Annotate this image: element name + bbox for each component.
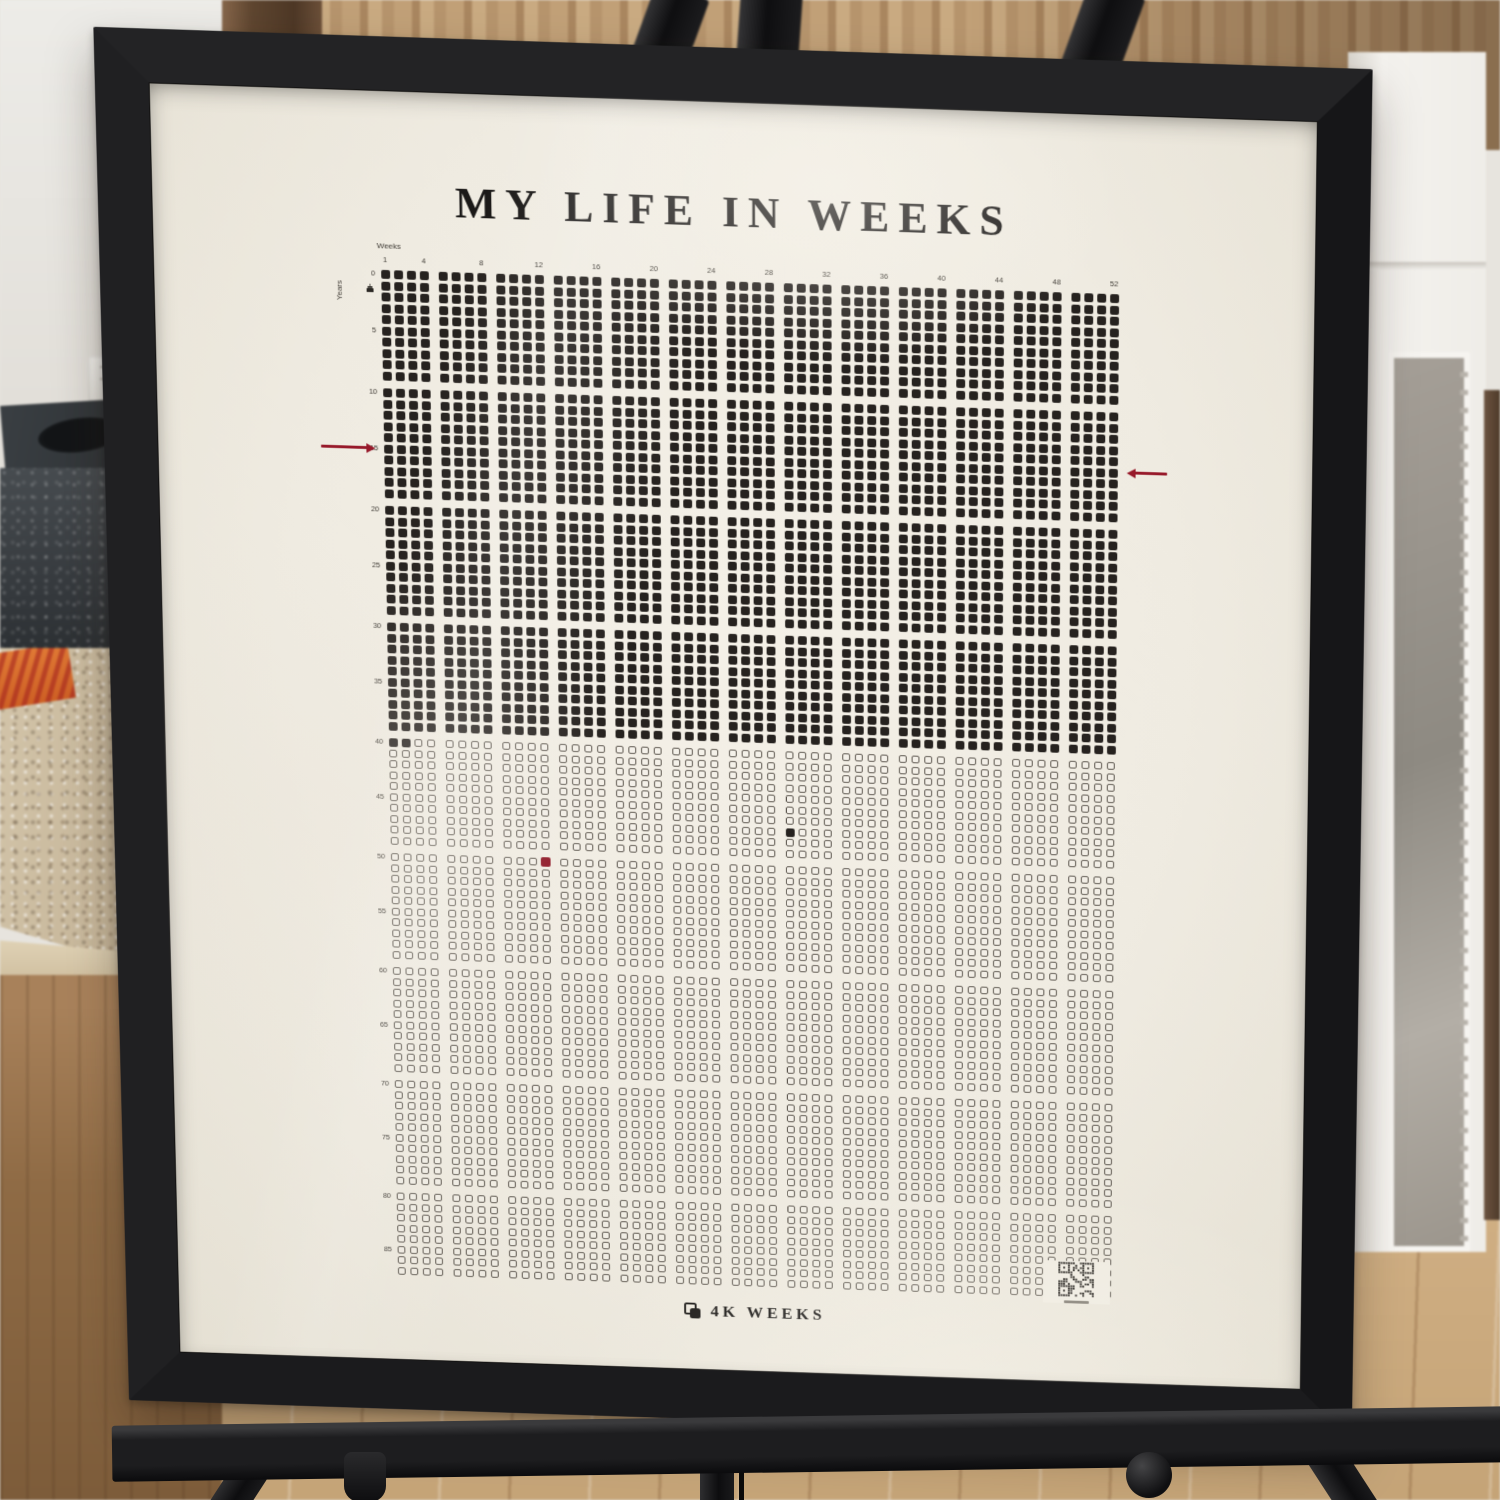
week-cell	[924, 957, 932, 965]
week-cell	[1067, 1135, 1075, 1143]
week-cell	[1107, 734, 1116, 743]
week-cell	[406, 978, 414, 986]
week-cell	[855, 460, 864, 469]
week-cell	[1027, 291, 1036, 300]
week-cell	[855, 1068, 863, 1076]
week-cell	[509, 1239, 517, 1247]
week-cell	[937, 756, 945, 764]
week-cell	[823, 648, 832, 657]
week-cell	[567, 299, 576, 308]
week-cell	[1068, 930, 1076, 938]
week-cell	[769, 1237, 777, 1245]
week-cell	[868, 1149, 876, 1157]
week-cell	[689, 1255, 697, 1263]
week-cell	[582, 495, 591, 504]
week-cell	[980, 1030, 988, 1038]
week-cell	[868, 869, 876, 877]
week-cell	[810, 414, 819, 423]
week-cell	[601, 1119, 609, 1127]
week-cell	[1014, 325, 1023, 334]
week-cell	[674, 1009, 682, 1017]
week-cell	[925, 507, 934, 516]
week-cell	[899, 967, 907, 975]
week-cell	[563, 1059, 571, 1067]
week-cell	[490, 1196, 498, 1204]
week-cell	[994, 526, 1003, 535]
week-cell	[655, 862, 663, 870]
week-cell	[1070, 478, 1079, 487]
week-cell	[395, 1064, 403, 1072]
week-cell	[656, 1030, 664, 1038]
week-cell	[955, 1195, 963, 1203]
week-cell	[447, 855, 455, 863]
week-cell	[531, 993, 539, 1001]
week-cell	[432, 1081, 440, 1089]
week-cell	[392, 886, 400, 894]
week-cell	[487, 992, 495, 1000]
week-cell	[710, 633, 719, 642]
week-cell	[1081, 909, 1089, 917]
week-cell	[600, 995, 608, 1003]
week-cell	[697, 633, 706, 642]
week-cell	[1050, 760, 1058, 768]
week-cell	[1092, 1076, 1100, 1084]
week-cell	[611, 289, 620, 298]
week-cell	[454, 1269, 462, 1277]
week-cell	[581, 417, 590, 426]
week-cell	[1079, 1247, 1087, 1255]
week-cell	[1071, 456, 1080, 465]
week-cell	[539, 600, 548, 609]
week-cell	[753, 490, 762, 499]
week-cell	[936, 1274, 944, 1282]
week-cell	[925, 485, 934, 494]
week-cell	[843, 1260, 851, 1268]
week-cell	[812, 1206, 820, 1214]
week-cell	[517, 879, 525, 887]
week-cell	[1106, 838, 1114, 846]
week-cell	[1052, 511, 1061, 520]
week-cell	[700, 1074, 708, 1082]
week-cell	[577, 1262, 585, 1270]
week-cell	[672, 720, 681, 729]
week-cell	[1083, 573, 1092, 582]
week-cell	[395, 327, 404, 336]
week-cell	[1105, 1055, 1113, 1063]
week-cell	[786, 850, 794, 858]
week-cell	[1108, 619, 1117, 628]
week-cell	[682, 325, 691, 334]
week-cell	[632, 1184, 640, 1192]
week-cell	[573, 881, 581, 889]
week-cell	[687, 1101, 695, 1109]
week-cell	[823, 436, 832, 445]
week-cell	[631, 1018, 639, 1026]
week-cell	[472, 839, 480, 847]
week-cell	[937, 440, 946, 449]
week-cell	[1051, 539, 1060, 548]
week-cell	[581, 406, 590, 415]
week-cell	[911, 1161, 919, 1169]
week-cell	[684, 582, 693, 591]
week-cell	[389, 760, 397, 768]
week-cell	[395, 1102, 403, 1110]
week-cell	[593, 288, 602, 297]
week-cell	[810, 363, 819, 372]
week-cell	[686, 863, 694, 871]
week-cell	[955, 1109, 963, 1117]
week-cell	[924, 925, 932, 933]
week-cell	[709, 583, 718, 592]
week-cell	[587, 1038, 595, 1046]
week-cell	[567, 344, 576, 353]
week-cell	[824, 965, 832, 973]
week-cell	[480, 459, 489, 468]
week-cell	[1096, 529, 1105, 538]
week-cell	[568, 439, 577, 448]
week-cell	[911, 1210, 919, 1218]
week-cell	[670, 487, 679, 496]
week-cell	[407, 293, 416, 302]
week-cell	[653, 686, 662, 695]
week-cell	[1012, 895, 1020, 903]
week-cell	[568, 406, 577, 415]
week-cell	[484, 785, 492, 793]
week-cell	[670, 409, 679, 418]
week-cell	[455, 519, 464, 528]
week-cell	[1025, 847, 1033, 855]
week-cell	[448, 866, 456, 874]
week-cell	[642, 883, 650, 891]
week-cell	[583, 590, 592, 599]
week-cell	[740, 467, 749, 476]
week-cell	[395, 315, 404, 324]
week-cell	[686, 874, 694, 882]
week-cell	[880, 343, 889, 352]
week-cell	[596, 629, 605, 638]
week-cell	[456, 586, 465, 595]
week-cell	[452, 1146, 460, 1154]
week-cell	[899, 881, 907, 889]
week-cell	[512, 510, 521, 519]
week-cell	[420, 1081, 428, 1089]
week-cell	[1051, 689, 1060, 698]
week-cell	[405, 940, 413, 948]
week-cell	[842, 868, 850, 876]
week-cell	[854, 331, 863, 340]
week-cell	[956, 757, 964, 765]
week-cell	[800, 1270, 808, 1278]
week-cell	[843, 1127, 851, 1135]
week-cell	[484, 774, 492, 782]
week-cell	[478, 307, 487, 316]
week-cell	[497, 308, 506, 317]
week-cell	[912, 717, 921, 726]
week-cell	[868, 1096, 876, 1104]
week-cell	[880, 842, 888, 850]
week-cell	[810, 542, 819, 551]
week-cell	[557, 589, 566, 598]
week-cell	[1069, 815, 1077, 823]
week-cell	[687, 998, 695, 1006]
week-cell	[568, 428, 577, 437]
week-cell	[956, 323, 965, 332]
week-cell	[524, 404, 533, 413]
week-cell	[658, 1275, 666, 1283]
week-cell	[842, 682, 851, 691]
week-cell	[588, 1108, 596, 1116]
week-cell	[743, 962, 751, 970]
week-cell	[800, 1126, 808, 1134]
week-cell	[423, 507, 432, 516]
week-cell	[464, 1136, 472, 1144]
week-cell	[535, 286, 544, 295]
week-cell	[912, 462, 921, 471]
week-cell	[613, 418, 622, 427]
week-cell	[1048, 1123, 1056, 1131]
week-cell	[924, 651, 933, 660]
week-cell	[1080, 952, 1088, 960]
week-cell	[1040, 326, 1049, 335]
week-cell	[766, 412, 775, 421]
week-cell	[1071, 338, 1080, 347]
week-cell	[798, 713, 807, 722]
week-cell	[912, 651, 921, 660]
week-cell	[785, 480, 794, 489]
week-cell	[880, 286, 889, 295]
week-cell	[539, 650, 548, 659]
week-cell	[616, 746, 624, 754]
week-cell	[993, 1019, 1001, 1027]
week-cell	[442, 508, 451, 517]
week-cell	[823, 543, 832, 552]
week-cell	[433, 1135, 441, 1143]
week-cell	[387, 633, 396, 642]
week-cell	[937, 1082, 945, 1090]
week-cell	[413, 656, 422, 665]
week-cell	[912, 777, 920, 785]
week-cell	[899, 935, 907, 943]
week-cell	[700, 1112, 708, 1120]
week-cell	[654, 758, 662, 766]
week-cell	[880, 683, 889, 692]
week-cell	[880, 567, 889, 576]
week-cell	[1024, 907, 1032, 915]
week-cell	[955, 1163, 963, 1171]
week-cell	[1094, 723, 1103, 732]
week-cell	[1049, 940, 1057, 948]
week-cell	[955, 1082, 963, 1090]
week-cell	[497, 330, 506, 339]
year-tick-label: 10	[351, 386, 377, 396]
week-cell	[1048, 1145, 1056, 1153]
week-cell	[787, 1125, 795, 1133]
week-cell	[937, 613, 946, 622]
week-cell	[491, 1259, 499, 1267]
week-cell	[937, 1109, 945, 1117]
week-cell	[912, 995, 920, 1003]
week-cell	[517, 901, 525, 909]
week-cell	[653, 697, 662, 706]
week-cell	[611, 277, 620, 286]
week-cell	[744, 1268, 752, 1276]
week-cell	[712, 1042, 720, 1050]
week-cell	[392, 929, 400, 937]
week-cell	[628, 708, 637, 717]
week-cell	[955, 926, 963, 934]
week-cell	[456, 597, 465, 606]
week-cell	[452, 1168, 460, 1176]
week-cell	[994, 537, 1003, 546]
week-cell	[475, 991, 483, 999]
week-cell	[912, 473, 921, 482]
week-cell	[474, 981, 482, 989]
week-cell	[969, 368, 978, 377]
week-cell	[1092, 1066, 1100, 1074]
week-cell	[799, 1094, 807, 1102]
week-cell	[924, 1108, 932, 1116]
week-cell	[937, 1039, 945, 1047]
week-cell	[572, 766, 580, 774]
week-cell	[755, 941, 763, 949]
week-cell	[408, 361, 417, 370]
week-cell	[505, 922, 513, 930]
week-cell	[567, 332, 576, 341]
week-cell	[969, 430, 978, 439]
week-cell	[467, 469, 476, 478]
week-cell	[924, 1049, 932, 1057]
week-cell	[462, 1002, 470, 1010]
week-cell	[924, 1006, 932, 1014]
week-cell	[695, 325, 704, 334]
week-cell	[625, 346, 634, 355]
week-cell	[394, 1032, 402, 1040]
week-cell	[899, 439, 908, 448]
week-cell	[797, 436, 806, 445]
year-tick-label: 0	[349, 268, 375, 278]
week-cell	[912, 870, 920, 878]
week-cell	[1011, 1213, 1019, 1221]
week-cell	[798, 564, 807, 573]
week-cell	[508, 1137, 516, 1145]
week-cell	[1050, 793, 1058, 801]
week-cell	[1108, 596, 1117, 605]
week-cell	[571, 717, 580, 726]
week-cell	[727, 411, 736, 420]
week-cell	[1095, 701, 1104, 710]
week-cell	[586, 925, 594, 933]
week-cell	[730, 940, 738, 948]
week-cell	[478, 284, 487, 293]
week-cell	[824, 753, 832, 761]
week-cell	[1109, 457, 1118, 466]
week-cell	[1052, 444, 1061, 453]
week-cell	[912, 439, 921, 448]
week-cell	[824, 922, 832, 930]
week-cell	[812, 1094, 820, 1102]
week-cell	[1110, 362, 1119, 371]
week-cell	[842, 353, 851, 362]
week-cell	[529, 819, 537, 827]
week-cell	[503, 808, 511, 816]
week-cell	[880, 967, 888, 975]
week-cell	[532, 1128, 540, 1136]
week-cell	[937, 855, 945, 863]
week-cell	[672, 759, 680, 767]
week-cell	[1108, 552, 1117, 561]
week-cell	[421, 316, 430, 325]
week-cell	[456, 564, 465, 573]
week-cell	[924, 1130, 932, 1138]
week-cell	[924, 1162, 932, 1170]
week-cell	[642, 823, 650, 831]
week-cell	[843, 911, 851, 919]
week-cell	[739, 282, 748, 291]
week-cell	[740, 400, 749, 409]
week-cell	[765, 328, 774, 337]
week-cell	[420, 271, 429, 280]
week-cell	[799, 953, 807, 961]
week-cell	[1109, 395, 1118, 404]
week-cell	[632, 1142, 640, 1150]
week-cell	[569, 450, 578, 459]
week-cell	[842, 375, 851, 384]
week-cell	[1052, 489, 1061, 498]
week-cell	[756, 1011, 764, 1019]
week-cell	[696, 488, 705, 497]
week-cell	[994, 615, 1003, 624]
week-cell	[1052, 371, 1061, 380]
week-cell	[756, 1188, 764, 1196]
week-cell	[1026, 443, 1035, 452]
week-cell	[501, 670, 510, 679]
week-cell	[765, 350, 774, 359]
week-cell	[516, 857, 524, 865]
week-cell	[1012, 781, 1020, 789]
week-cell	[464, 1125, 472, 1133]
week-cell	[576, 1172, 584, 1180]
year-tick-label: 35	[357, 676, 383, 685]
week-cell	[711, 875, 719, 883]
week-cell	[1106, 963, 1114, 971]
week-cell	[708, 410, 717, 419]
week-cell	[744, 1113, 752, 1121]
week-cell	[1082, 607, 1091, 616]
week-cell	[615, 729, 624, 738]
week-cell	[993, 835, 1001, 843]
week-cell	[824, 714, 833, 723]
week-cell	[811, 648, 820, 657]
week-cell	[1049, 989, 1057, 997]
week-cell	[982, 324, 991, 333]
week-cell	[899, 612, 908, 621]
week-cell	[581, 395, 590, 404]
week-cell	[855, 715, 864, 724]
week-cell	[1068, 1000, 1076, 1008]
week-cell	[1069, 733, 1078, 742]
week-cell	[560, 809, 568, 817]
week-cell	[657, 1185, 665, 1193]
week-cell	[640, 675, 649, 684]
week-cell	[496, 296, 505, 305]
week-cell	[402, 761, 410, 769]
week-cell	[799, 910, 807, 918]
week-cell	[487, 954, 495, 962]
week-cell	[854, 438, 863, 447]
week-cell	[514, 682, 523, 691]
week-cell	[683, 409, 692, 418]
week-cell	[742, 772, 750, 780]
